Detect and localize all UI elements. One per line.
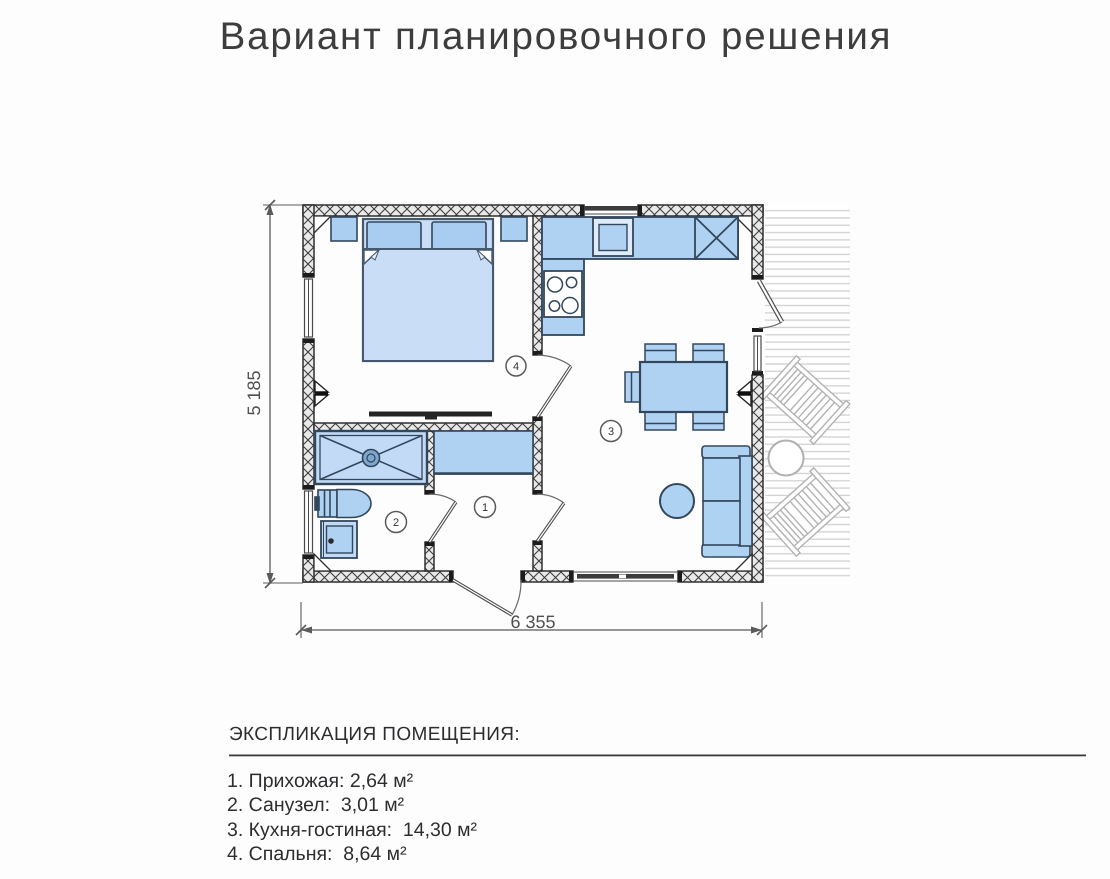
svg-text:2: 2 [393,517,399,529]
svg-text:3: 3 [608,426,614,438]
svg-text:2. Санузел: 3,01 м²: 2. Санузел: 3,01 м² [227,794,405,816]
svg-text:3. Кухня-гостиная: 14,30 м²: 3. Кухня-гостиная: 14,30 м² [227,819,478,841]
svg-text:ЭКСПЛИКАЦИЯ ПОМЕЩЕНИЯ:: ЭКСПЛИКАЦИЯ ПОМЕЩЕНИЯ: [229,724,520,745]
svg-text:1: 1 [482,502,488,514]
svg-text:5 185: 5 185 [244,370,264,415]
svg-text:4. Спальня: 8,64 м²: 4. Спальня: 8,64 м² [227,843,407,865]
svg-text:6 355: 6 355 [510,612,555,632]
svg-text:Вариант планировочного решения: Вариант планировочного решения [220,15,893,58]
svg-text:4: 4 [513,361,519,373]
svg-text:1. Прихожая: 2,64 м²: 1. Прихожая: 2,64 м² [227,770,414,792]
